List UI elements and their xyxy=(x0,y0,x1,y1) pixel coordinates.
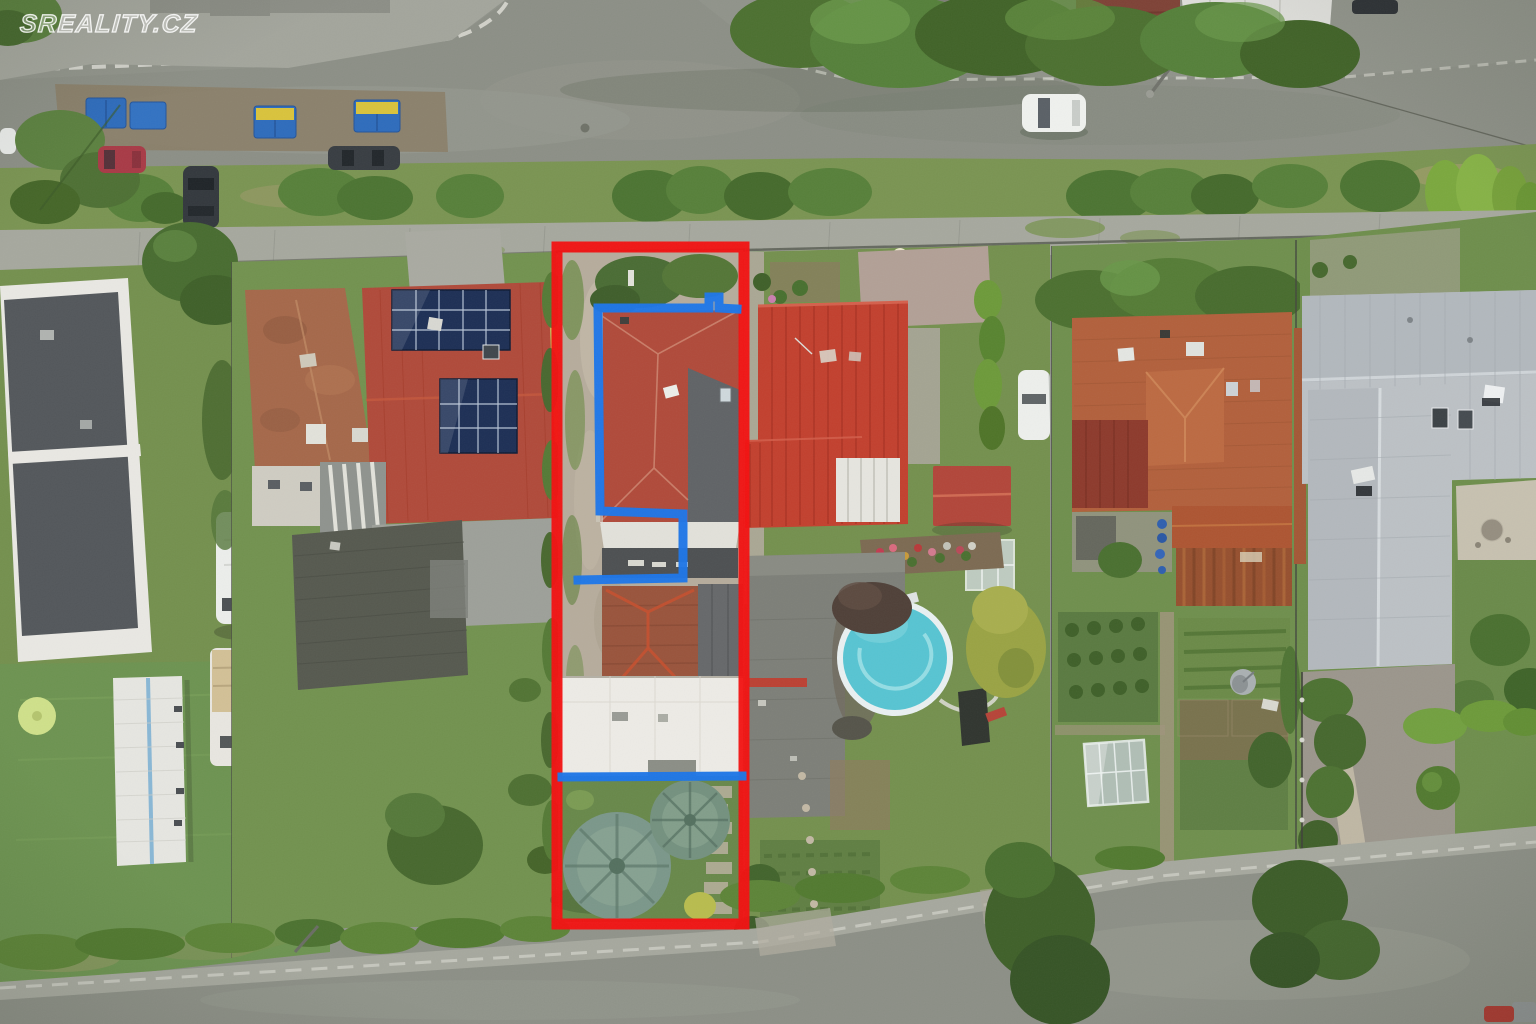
aerial-photo-canvas xyxy=(0,0,1536,1024)
film-grain xyxy=(0,0,1536,1024)
aerial-photo: SREALITY.CZ xyxy=(0,0,1536,1024)
sreality-watermark: SREALITY.CZ xyxy=(19,10,199,39)
